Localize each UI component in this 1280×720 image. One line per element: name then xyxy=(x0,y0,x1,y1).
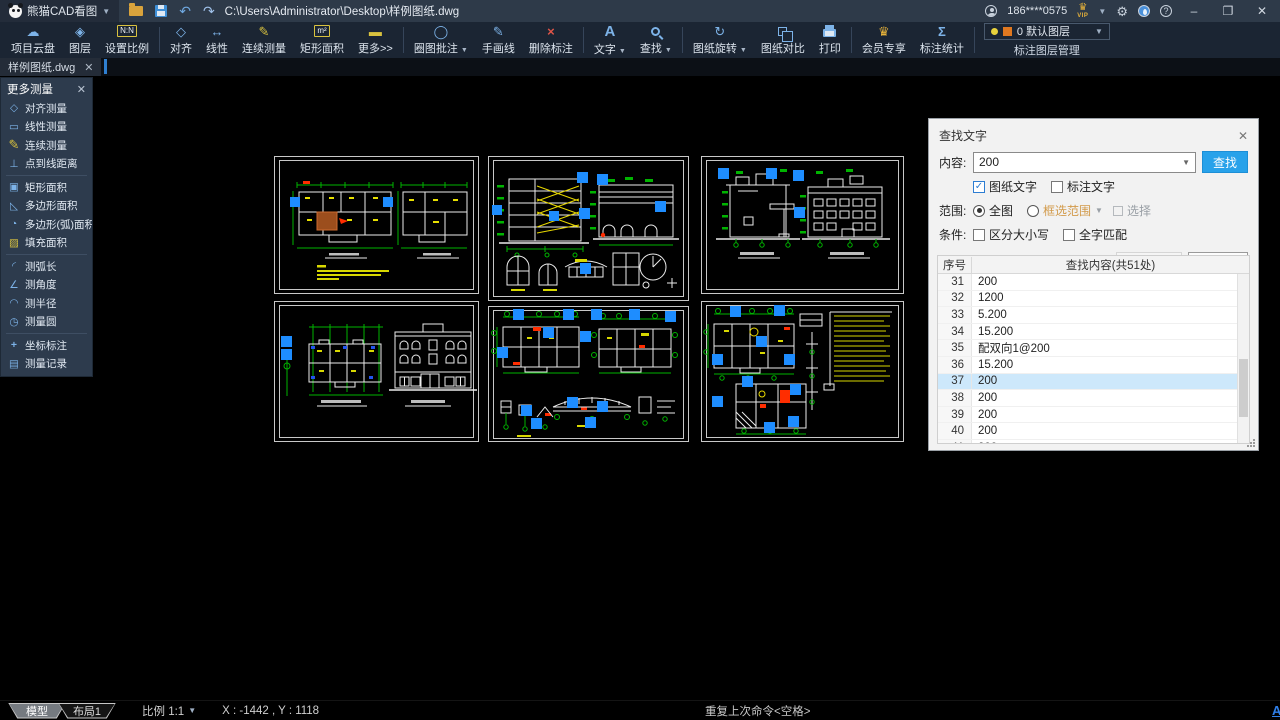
result-text: 5.200 xyxy=(972,309,1237,321)
account-chevron-icon[interactable]: ▼ xyxy=(1098,7,1106,16)
toolbar-separator xyxy=(403,27,404,53)
cloud-icon: ☁ xyxy=(27,24,40,38)
measure-item-point-to-line[interactable]: ⊥点到线距离 xyxy=(1,155,92,174)
redo-icon[interactable]: ↷ xyxy=(203,4,215,18)
result-text: 200 xyxy=(972,392,1237,404)
toolbar-button-linear[interactable]: ↔线性 xyxy=(199,22,235,58)
more-icon: ▬ xyxy=(369,24,382,38)
column-header-content: 查找内容(共51处) xyxy=(972,257,1249,273)
toolbar-button-cloud[interactable]: ☁项目云盘 xyxy=(4,22,62,58)
theme-icon[interactable] xyxy=(1138,5,1150,17)
toolbar-button-delete-annotation[interactable]: ×删除标注 xyxy=(522,22,580,58)
file-path: C:\Users\Administrator\Desktop\样例图纸.dwg xyxy=(225,3,460,19)
chevron-down-icon: ▼ xyxy=(1095,27,1103,36)
drawing-sheet-5[interactable] xyxy=(487,305,690,443)
toolbar-separator xyxy=(851,27,852,53)
minimize-button[interactable]: – xyxy=(1182,4,1206,18)
search-content-combobox[interactable]: 200 ▼ xyxy=(973,152,1196,173)
toolbar-button-freehand[interactable]: ✎手画线 xyxy=(475,22,522,58)
circle-measure-icon: ◷ xyxy=(7,316,21,328)
result-seq: 31 xyxy=(938,274,972,290)
print-icon xyxy=(823,24,836,38)
toolbar-separator xyxy=(583,27,584,53)
column-header-seq: 序号 xyxy=(938,257,972,273)
sheet-6-graphics xyxy=(700,300,905,443)
command-hint: 重复上次命令<空格> xyxy=(705,703,810,719)
cursor-coordinates: X : -1442 , Y : 1118 xyxy=(222,705,319,717)
chevron-down-icon: ▼ xyxy=(102,7,110,16)
measure-panel-separator xyxy=(6,175,87,176)
find-dialog-title: 查找文字 xyxy=(939,127,987,144)
chevron-down-icon: ▼ xyxy=(740,47,747,54)
layers-icon: ◈ xyxy=(75,24,85,38)
measure-item-record[interactable]: ▤测量记录 xyxy=(1,355,92,374)
drawing-sheet-6[interactable] xyxy=(700,300,905,443)
toolbar-button-align[interactable]: ◇对齐 xyxy=(163,22,199,58)
radio-unselected-icon xyxy=(1027,205,1039,217)
compare-icon xyxy=(778,24,787,38)
result-text: 200 xyxy=(972,276,1237,288)
measure-panel-body: ◇对齐测量▭线性测量✎连续测量⊥点到线距离▣矩形面积◺多边形面积◔多边形(弧)面… xyxy=(1,99,92,373)
toolbar-button-set-scale[interactable]: N:N设置比例 xyxy=(98,22,156,58)
layer-manage-button[interactable]: 标注图层管理 xyxy=(984,42,1110,58)
freehand-icon: ✎ xyxy=(493,24,504,38)
toolbar: ☁项目云盘◈图层N:N设置比例◇对齐↔线性✎连续测量m²矩形面积▬更多>>◯圈图… xyxy=(0,22,1280,58)
ai-assistant-button[interactable]: AI xyxy=(1272,703,1280,718)
coordinate-icon: + xyxy=(7,339,21,351)
find-button[interactable]: 查找 xyxy=(1202,151,1248,173)
scale-ratio-icon: N:N xyxy=(117,24,137,38)
toolbar-button-print[interactable]: 打印 xyxy=(812,22,848,58)
measure-item-align-measure[interactable]: ◇对齐测量 xyxy=(1,99,92,118)
checkbox-unchecked-icon xyxy=(1051,181,1063,193)
sheet-5-graphics xyxy=(487,305,690,443)
toolbar-button-circle-annotate[interactable]: ◯圈图批注 ▼ xyxy=(407,22,475,58)
tab-bar-accent xyxy=(104,59,107,74)
result-seq: 38 xyxy=(938,390,972,406)
document-tab[interactable]: 样例图纸.dwg ✕ xyxy=(0,58,101,76)
result-seq: 33 xyxy=(938,307,972,323)
result-seq: 37 xyxy=(938,374,972,390)
polygon-arc-icon: ◔ xyxy=(7,218,21,230)
help-icon[interactable]: ? xyxy=(1160,5,1172,17)
toolbar-button-stats[interactable]: Σ标注统计 xyxy=(913,22,971,58)
find-result-row-33[interactable]: 335.200 xyxy=(938,307,1237,324)
find-result-row-32[interactable]: 321200 xyxy=(938,291,1237,308)
select-button[interactable]: 选择 xyxy=(1127,202,1151,219)
toolbar-separator xyxy=(159,27,160,53)
app-logo-icon xyxy=(9,5,22,18)
app-name: 熊猫CAD看图 xyxy=(27,3,97,19)
result-text: 200 xyxy=(972,375,1237,387)
radio-box-selection[interactable]: 框选范围 xyxy=(1027,202,1091,219)
result-seq: 34 xyxy=(938,324,972,340)
find-result-row-35[interactable]: 35配双向1@200 xyxy=(938,340,1237,357)
radio-selected-icon xyxy=(973,205,985,217)
toolbar-separator xyxy=(974,27,975,53)
layer-visibility-icon xyxy=(991,28,998,35)
condition-label: 条件: xyxy=(939,226,973,243)
toolbar-button-compare[interactable]: 图纸对比 xyxy=(754,22,812,58)
checkbox-checked-icon xyxy=(973,181,985,193)
find-result-row-31[interactable]: 31200 xyxy=(938,274,1237,291)
measure-item-coordinate[interactable]: +坐标标注 xyxy=(1,336,92,355)
find-result-row-41[interactable]: 41200 xyxy=(938,440,1237,444)
tab-close-icon[interactable]: ✕ xyxy=(84,61,93,74)
arc-length-icon: ◜ xyxy=(7,260,21,272)
find-result-row-39[interactable]: 39200 xyxy=(938,407,1237,424)
find-results-table: 序号 查找内容(共51处) 31200321200335.2003415.200… xyxy=(937,255,1250,444)
toolbar-button-vip[interactable]: ♛会员专享 xyxy=(855,22,913,58)
delete-annotation-icon: × xyxy=(547,24,555,38)
measure-panel-separator xyxy=(6,254,87,255)
settings-gear-icon[interactable]: ⚙ xyxy=(1116,5,1128,18)
toolbar-button-find[interactable]: 查找 ▼ xyxy=(633,22,679,58)
fill-area-icon: ▨ xyxy=(7,237,21,249)
sheet-3-graphics xyxy=(700,155,905,295)
measure-item-continuous-measure[interactable]: ✎连续测量 xyxy=(1,136,92,155)
checkbox-whole-word[interactable]: 全字匹配 xyxy=(1063,226,1127,243)
checkbox-unchecked-icon xyxy=(973,229,985,241)
find-result-row-36[interactable]: 3615.200 xyxy=(938,357,1237,374)
content-label: 内容: xyxy=(939,154,973,171)
chevron-down-icon: ▼ xyxy=(619,48,626,55)
measure-panel-close-icon[interactable]: ✕ xyxy=(77,83,86,96)
rotate-icon: ↻ xyxy=(714,24,725,38)
result-text: 15.200 xyxy=(972,326,1237,338)
checkbox-drawing-text[interactable]: 图纸文字 xyxy=(973,178,1037,195)
account-number[interactable]: 186****0575 xyxy=(1007,5,1067,17)
toolbar-button-more[interactable]: ▬更多>> xyxy=(351,22,400,58)
layer-dropdown[interactable]: 0 默认图层 ▼ xyxy=(984,23,1110,40)
checkbox-annotation-text[interactable]: 标注文字 xyxy=(1051,178,1115,195)
layer-control: 0 默认图层 ▼ 标注图层管理 xyxy=(984,22,1110,58)
toolbar-button-rect-area[interactable]: m²矩形面积 xyxy=(293,22,351,58)
measure-item-fill-area[interactable]: ▨填充面积 xyxy=(1,234,92,253)
rect-area2-icon: ▣ xyxy=(7,181,21,193)
toolbar-button-rotate[interactable]: ↻图纸旋转 ▼ xyxy=(686,22,754,58)
toolbar-separator xyxy=(682,27,683,53)
circle-annotate-icon: ◯ xyxy=(434,24,449,38)
measure-item-radius[interactable]: ◠测半径 xyxy=(1,294,92,313)
find-result-row-38[interactable]: 38200 xyxy=(938,390,1237,407)
radius-icon: ◠ xyxy=(7,297,21,309)
layer-color-swatch xyxy=(1003,27,1012,36)
checkbox-case-sensitive[interactable]: 区分大小写 xyxy=(973,226,1049,243)
checkbox-unchecked-icon xyxy=(1063,229,1075,241)
linear-icon: ↔ xyxy=(211,24,224,38)
chevron-down-icon: ▼ xyxy=(1182,158,1190,167)
text-icon: A xyxy=(604,24,615,39)
open-file-icon[interactable] xyxy=(129,6,143,16)
rect-area-icon: m² xyxy=(314,24,329,38)
app-menu-button[interactable]: 熊猫CAD看图 ▼ xyxy=(0,0,119,22)
result-text: 200 xyxy=(972,425,1237,437)
scrollbar-thumb[interactable] xyxy=(1239,359,1248,417)
result-text: 配双向1@200 xyxy=(972,340,1237,356)
undo-icon[interactable]: ↶ xyxy=(179,4,191,18)
document-tab-label: 样例图纸.dwg xyxy=(8,59,75,75)
title-bar: 熊猫CAD看图 ▼ ↶ ↷ C:\Users\Administrator\Des… xyxy=(0,0,1280,22)
find-result-row-37[interactable]: 37200 xyxy=(938,374,1237,391)
find-text-dialog: 查找文字 ✕ 内容: 200 ▼ 查找 图纸文字 标注文字 范围: 全图 框选范… xyxy=(928,118,1259,451)
dialog-close-icon[interactable]: ✕ xyxy=(1238,129,1248,143)
point-line-icon: ⊥ xyxy=(7,158,21,170)
result-text: 1200 xyxy=(972,292,1237,304)
measure-item-circle[interactable]: ◷测量圆 xyxy=(1,313,92,332)
model-tab-label: 模型 xyxy=(9,704,65,718)
drawing-sheet-1[interactable] xyxy=(273,155,480,295)
sheet-2-graphics xyxy=(487,155,690,302)
linear-measure-icon: ▭ xyxy=(7,121,21,133)
result-seq: 39 xyxy=(938,407,972,423)
result-seq: 40 xyxy=(938,423,972,439)
continuous-measure-icon: ✎ xyxy=(7,138,21,152)
continuous-measure-icon: ✎ xyxy=(259,24,270,38)
toolbar-button-layers[interactable]: ◈图层 xyxy=(62,22,98,58)
measure-panel: 更多测量 ✕ ◇对齐测量▭线性测量✎连续测量⊥点到线距离▣矩形面积◺多边形面积◔… xyxy=(0,77,93,377)
select-area-icon xyxy=(1113,206,1123,216)
current-layer-name: 0 默认图层 xyxy=(1017,23,1090,39)
stats-icon: Σ xyxy=(938,24,946,38)
user-icon[interactable] xyxy=(985,5,997,17)
scope-label: 范围: xyxy=(939,202,973,219)
angle-icon: ∠ xyxy=(7,279,21,291)
result-seq: 35 xyxy=(938,340,972,356)
scale-selector[interactable]: 比例 1:1 ▼ xyxy=(142,703,196,719)
search-content-value: 200 xyxy=(979,155,999,169)
maximize-button[interactable]: ❐ xyxy=(1216,4,1240,18)
toolbar-button-continuous-measure[interactable]: ✎连续测量 xyxy=(235,22,293,58)
toolbar-button-text[interactable]: A文字 ▼ xyxy=(587,22,633,58)
layout1-tab[interactable]: 布局1 xyxy=(58,703,116,719)
scale-value: 比例 1:1 xyxy=(142,703,184,719)
dialog-resize-grip[interactable] xyxy=(1247,439,1255,447)
result-text: 15.200 xyxy=(972,359,1237,371)
find-icon xyxy=(651,24,660,38)
find-result-row-34[interactable]: 3415.200 xyxy=(938,324,1237,341)
radio-whole-drawing[interactable]: 全图 xyxy=(973,202,1013,219)
document-tab-bar: 样例图纸.dwg ✕ xyxy=(0,58,1280,76)
drawing-sheet-2[interactable] xyxy=(487,155,690,302)
vip-crown-icon[interactable]: ♛ VIP xyxy=(1077,3,1088,19)
save-icon[interactable] xyxy=(155,5,167,17)
close-button[interactable]: ✕ xyxy=(1250,4,1274,18)
polygon-area-icon: ◺ xyxy=(7,200,21,212)
status-bar: 模型 布局1 比例 1:1 ▼ X : -1442 , Y : 1118 重复上… xyxy=(0,700,1280,720)
result-text: 200 xyxy=(972,409,1237,421)
toolbar-buttons: ☁项目云盘◈图层N:N设置比例◇对齐↔线性✎连续测量m²矩形面积▬更多>>◯圈图… xyxy=(4,22,971,58)
chevron-down-icon: ▼ xyxy=(665,47,672,54)
find-results-body: 31200321200335.2003415.20035配双向1@2003615… xyxy=(938,274,1237,443)
find-result-row-40[interactable]: 40200 xyxy=(938,423,1237,440)
drawing-sheet-3[interactable] xyxy=(700,155,905,295)
measure-panel-title: 更多测量 xyxy=(7,81,53,97)
measure-item-angle[interactable]: ∠测角度 xyxy=(1,276,92,295)
result-seq: 41 xyxy=(938,440,972,444)
align-icon: ◇ xyxy=(176,24,186,38)
chevron-down-icon: ▼ xyxy=(188,706,196,715)
result-seq: 32 xyxy=(938,291,972,307)
measure-item-polygon-arc-area[interactable]: ◔多边形(弧)面积 xyxy=(1,215,92,234)
result-text: 200 xyxy=(972,442,1237,444)
chevron-down-icon: ▼ xyxy=(461,47,468,54)
table-scrollbar[interactable] xyxy=(1237,274,1249,443)
layout1-tab-label: 布局1 xyxy=(59,704,115,718)
sheet-4-graphics xyxy=(273,300,480,443)
chevron-down-icon: ▼ xyxy=(1095,206,1103,215)
align-measure-icon: ◇ xyxy=(7,102,21,114)
measure-item-arc-length[interactable]: ◜测弧长 xyxy=(1,257,92,276)
vip-icon: ♛ xyxy=(878,24,890,38)
measure-item-rect-area[interactable]: ▣矩形面积 xyxy=(1,178,92,197)
measure-item-linear-measure[interactable]: ▭线性测量 xyxy=(1,118,92,137)
drawing-sheet-4[interactable] xyxy=(273,300,480,443)
measure-panel-separator xyxy=(6,333,87,334)
record-icon: ▤ xyxy=(7,358,21,370)
sheet-1-graphics xyxy=(273,155,480,295)
measure-item-polygon-area[interactable]: ◺多边形面积 xyxy=(1,197,92,216)
result-seq: 36 xyxy=(938,357,972,373)
